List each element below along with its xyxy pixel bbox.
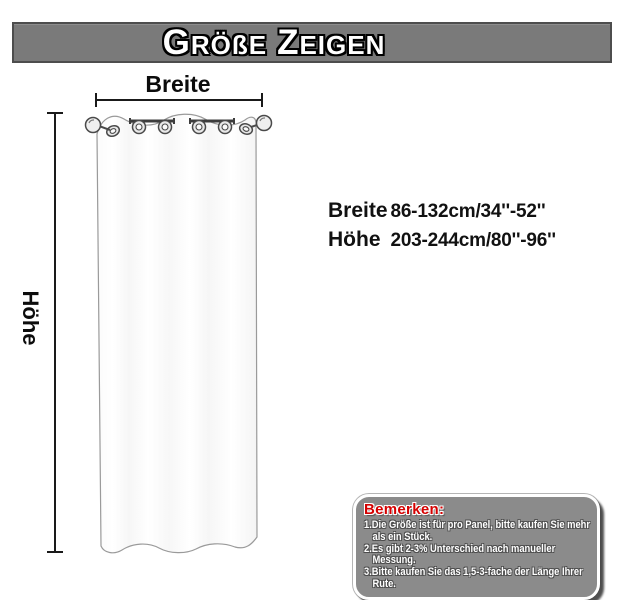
title-word-2-initial: Z [277,23,299,62]
spec-row-height: Höhe 203-244cm/80''-96'' [328,228,556,254]
height-dimension-line [47,113,63,552]
curtain-rod-segments [130,118,234,124]
note-item-3-line-2: Rute. [364,579,595,591]
rod-finials [86,116,272,133]
height-dimension-label: Höhe [17,291,43,346]
title-word-1-rest: RÖßE [191,30,267,60]
grommets [105,121,254,139]
page-title: GRÖßEZEIGEN [163,23,386,63]
spec-value-height: 203-244cm/80''-96'' [390,230,555,251]
curtain-illustration [97,114,257,553]
header-banner: GRÖßEZEIGEN [12,22,612,63]
spec-row-width: Breite 86-132cm/34''-52'' [328,199,556,225]
note-item-1: 1.Die Größe ist für pro Panel, bitte kau… [364,520,595,544]
notes-title: Bemerken: [364,501,589,518]
title-word-1-initial: G [163,23,191,62]
title-word-2: ZEIGEN [277,41,385,58]
title-word-2-rest: EIGEN [299,30,385,60]
width-dimension-label: Breite [108,71,248,98]
note-item-3-line-1: 3.Bitte kaufen Sie das 1,5-3-fache der L… [364,567,595,579]
note-item-3: 3.Bitte kaufen Sie das 1,5-3-fache der L… [364,567,595,591]
size-specs: Breite 86-132cm/34''-52'' Höhe 203-244cm… [328,199,556,257]
notes-panel: Bemerken: 1.Die Größe ist für pro Panel,… [353,494,600,600]
spec-label-height: Höhe [328,228,386,252]
title-word-1: GRÖßE [163,41,267,58]
spec-value-width: 86-132cm/34''-52'' [390,201,545,222]
note-item-2: 2.Es gibt 2-3% Unterschied nach manuelle… [364,544,595,568]
spec-label-width: Breite [328,199,386,223]
